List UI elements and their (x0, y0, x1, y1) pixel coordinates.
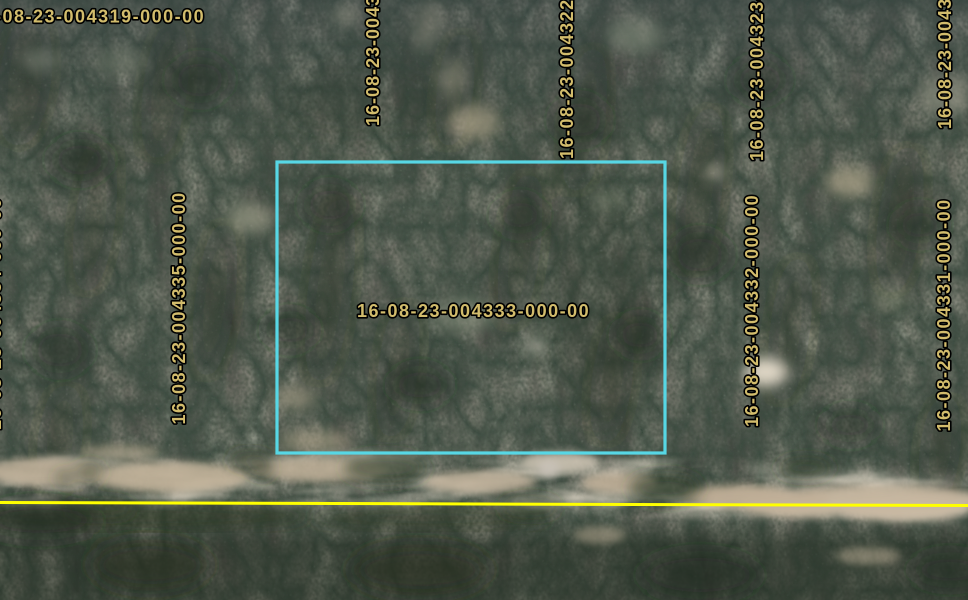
svg-text:16-08-23-004335-000-00: 16-08-23-004335-000-00 (169, 191, 189, 424)
svg-text:16-08-23-004334-000-00: 16-08-23-004334-000-00 (0, 197, 5, 430)
svg-text:16-08-23-004320-000-00: 16-08-23-004320-000-00 (363, 0, 383, 126)
svg-text:16-08-23-004331-000-00: 16-08-23-004331-000-00 (934, 198, 954, 431)
svg-text:16-08-23-004332-000-00: 16-08-23-004332-000-00 (742, 194, 762, 427)
svg-text:16-08-23-004322-000-00: 16-08-23-004322-000-00 (557, 0, 577, 159)
svg-text:16-08-23-004319-000-00: 16-08-23-004319-000-00 (0, 7, 205, 27)
svg-text:16-08-23-004324-000-00: 16-08-23-004324-000-00 (935, 0, 955, 129)
svg-text:16-08-23-004333-000-00: 16-08-23-004333-000-00 (357, 301, 590, 321)
svg-text:16-08-23-004323-000-00: 16-08-23-004323-000-00 (747, 0, 767, 161)
